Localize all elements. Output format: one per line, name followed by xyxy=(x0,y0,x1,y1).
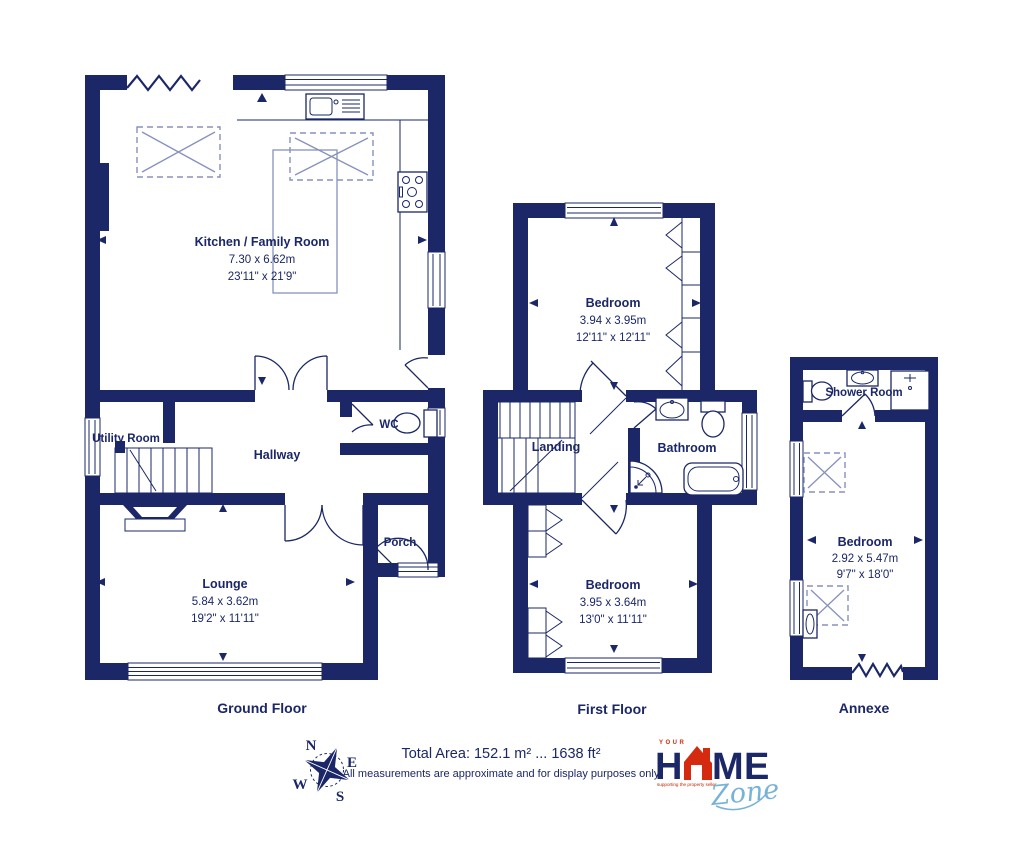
room-label-landing: Landing xyxy=(532,440,581,454)
lounge-window xyxy=(128,663,322,680)
floorplan-page: Kitchen / Family Room 7.30 x 6.62m 23'11… xyxy=(0,0,1024,867)
room-dim-bedroom-front-metric: 3.94 x 3.95m xyxy=(580,315,646,327)
bathroom-sink-icon xyxy=(656,398,688,420)
kitchen-sink-icon xyxy=(306,94,364,119)
room-label-utility: Utility Room xyxy=(92,433,160,445)
room-label-annexe-bedroom: Bedroom xyxy=(838,535,893,549)
kitchen-double-doors xyxy=(255,356,327,390)
rooflight-icon xyxy=(804,453,845,492)
bathroom-window xyxy=(742,413,757,490)
rooflight-icon xyxy=(290,133,373,180)
room-label-bedroom-back: Bedroom xyxy=(586,578,641,592)
stairs-ground xyxy=(115,441,212,493)
compass-east-label: E xyxy=(347,755,357,771)
home-o-house-icon xyxy=(684,746,712,780)
total-area-text: Total Area: 152.1 m² ... 1638 ft² xyxy=(401,746,600,762)
fireplace-icon xyxy=(123,505,187,531)
compass-rose-icon: N E S W xyxy=(293,737,361,805)
floorplan-drawing: Kitchen / Family Room 7.30 x 6.62m 23'11… xyxy=(0,0,1024,867)
home-zone-logo: YOUR H M E supporting the property selle… xyxy=(655,740,781,812)
annexe-plan: Shower Room Bedroom 2.92 x 5.47m 9'7" x … xyxy=(790,357,938,680)
toilet-icon xyxy=(394,410,437,437)
corner-shower-icon xyxy=(630,461,662,493)
annexe-window-lower xyxy=(790,580,803,636)
room-label-lounge: Lounge xyxy=(202,577,247,591)
bedroom-back-window xyxy=(565,658,662,673)
floor-label-annexe: Annexe xyxy=(839,700,890,716)
shower-room-sink-icon xyxy=(847,370,878,386)
room-dim-annexe-bedroom-metric: 2.92 x 5.47m xyxy=(832,553,898,565)
bedroom-front-window xyxy=(565,203,663,218)
ground-floor-plan: Kitchen / Family Room 7.30 x 6.62m 23'11… xyxy=(85,75,445,680)
porch-window xyxy=(398,563,438,577)
compass-west-label: W xyxy=(293,777,308,793)
room-dim-bedroom-back-metric: 3.95 x 3.64m xyxy=(580,597,646,609)
lounge-double-doors xyxy=(285,505,363,545)
kitchen-right-window xyxy=(428,252,445,308)
room-dim-lounge-imperial: 19'2" x 11'11" xyxy=(191,613,259,625)
compass-south-label: S xyxy=(336,789,344,805)
annexe-basin-icon xyxy=(803,610,817,638)
compass-north-label: N xyxy=(306,738,317,754)
logo-zone-text: Zone xyxy=(708,774,780,812)
toilet-icon xyxy=(701,401,725,437)
wc-door xyxy=(352,404,373,432)
room-dim-kitchen-metric: 7.30 x 6.62m xyxy=(229,254,295,266)
room-dim-bedroom-front-imperial: 12'11" x 12'11" xyxy=(576,332,650,344)
logo-tagline-text: supporting the property seller xyxy=(657,782,717,787)
utility-window xyxy=(85,418,100,476)
room-dim-lounge-metric: 5.84 x 3.62m xyxy=(192,596,258,608)
bedroom-front-door xyxy=(580,361,626,434)
floor-label-first: First Floor xyxy=(577,701,647,717)
disclaimer-text: All measurements are approximate and for… xyxy=(343,768,660,780)
room-dim-annexe-bedroom-imperial: 9'7" x 18'0" xyxy=(837,569,894,581)
room-label-shower-room: Shower Room xyxy=(825,387,902,399)
kitchen-top-window xyxy=(285,75,387,90)
room-label-hallway: Hallway xyxy=(254,448,301,462)
open-boundary-zigzag xyxy=(852,664,903,676)
room-label-bedroom-front: Bedroom xyxy=(586,296,641,310)
bathroom-door xyxy=(634,402,656,428)
open-boundary-zigzag xyxy=(127,76,200,90)
room-dim-kitchen-imperial: 23'11" x 21'9" xyxy=(228,271,297,283)
room-label-porch: Porch xyxy=(384,537,417,549)
kitchen-side-door xyxy=(405,358,428,388)
room-label-bathroom: Bathroom xyxy=(657,441,716,455)
room-dim-bedroom-back-imperial: 13'0" x 11'11" xyxy=(579,614,647,626)
rooflight-icon xyxy=(137,127,220,177)
bedroom-back-door xyxy=(582,462,626,534)
room-label-wc: WC xyxy=(379,419,398,431)
first-floor-plan: Bedroom 3.94 x 3.95m 12'11" x 12'11" Lan… xyxy=(483,203,757,673)
floor-label-ground: Ground Floor xyxy=(217,700,307,716)
wardrobe-icon xyxy=(528,505,562,658)
annexe-window-upper xyxy=(790,441,803,497)
hob-icon xyxy=(398,172,427,212)
bathtub-icon xyxy=(684,463,743,495)
room-label-kitchen: Kitchen / Family Room xyxy=(195,235,330,249)
